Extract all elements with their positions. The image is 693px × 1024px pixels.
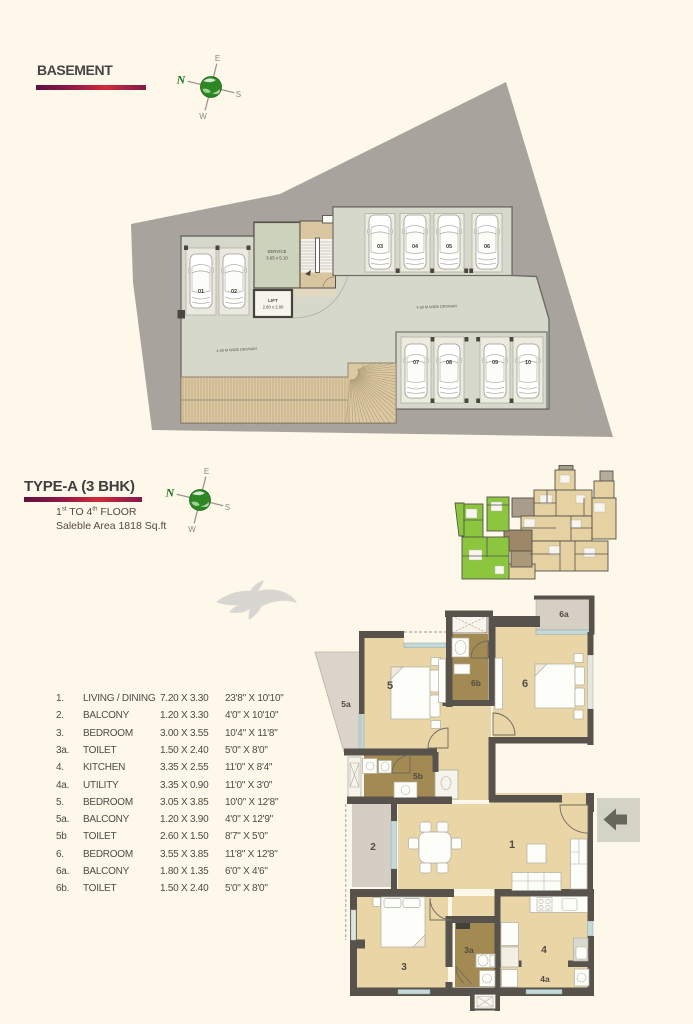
- svg-text:W: W: [199, 112, 207, 121]
- svg-text:5: 5: [387, 680, 393, 692]
- svg-text:2.80 x 2.00: 2.80 x 2.00: [263, 305, 284, 310]
- svg-text:LIFT: LIFT: [268, 298, 278, 303]
- svg-text:01: 01: [198, 289, 204, 295]
- svg-text:02: 02: [231, 289, 237, 295]
- svg-text:6b: 6b: [471, 678, 481, 688]
- svg-text:10: 10: [525, 360, 531, 366]
- svg-text:4: 4: [541, 945, 547, 956]
- svg-text:SERVICE: SERVICE: [267, 249, 286, 254]
- svg-text:05: 05: [446, 244, 452, 250]
- svg-text:3.65 x 5.10: 3.65 x 5.10: [266, 256, 288, 261]
- svg-text:E: E: [215, 54, 220, 63]
- svg-text:1: 1: [509, 839, 515, 851]
- svg-text:3: 3: [401, 962, 407, 973]
- svg-text:N: N: [165, 486, 176, 500]
- svg-text:6: 6: [522, 678, 528, 690]
- svg-text:3a: 3a: [464, 945, 474, 955]
- svg-text:S: S: [225, 503, 230, 512]
- svg-text:06: 06: [484, 244, 490, 250]
- svg-text:5a: 5a: [341, 699, 351, 709]
- svg-text:W: W: [188, 525, 196, 534]
- svg-text:5b: 5b: [413, 771, 423, 781]
- svg-text:6a: 6a: [559, 609, 569, 619]
- svg-text:08: 08: [446, 360, 452, 366]
- svg-text:09: 09: [492, 360, 498, 366]
- svg-text:07: 07: [413, 360, 419, 366]
- svg-text:E: E: [204, 467, 209, 476]
- svg-text:03: 03: [377, 244, 383, 250]
- svg-text:N: N: [176, 73, 187, 87]
- svg-text:2: 2: [370, 842, 376, 853]
- svg-text:04: 04: [412, 244, 419, 250]
- svg-text:S: S: [236, 90, 241, 99]
- svg-text:4a: 4a: [540, 974, 550, 984]
